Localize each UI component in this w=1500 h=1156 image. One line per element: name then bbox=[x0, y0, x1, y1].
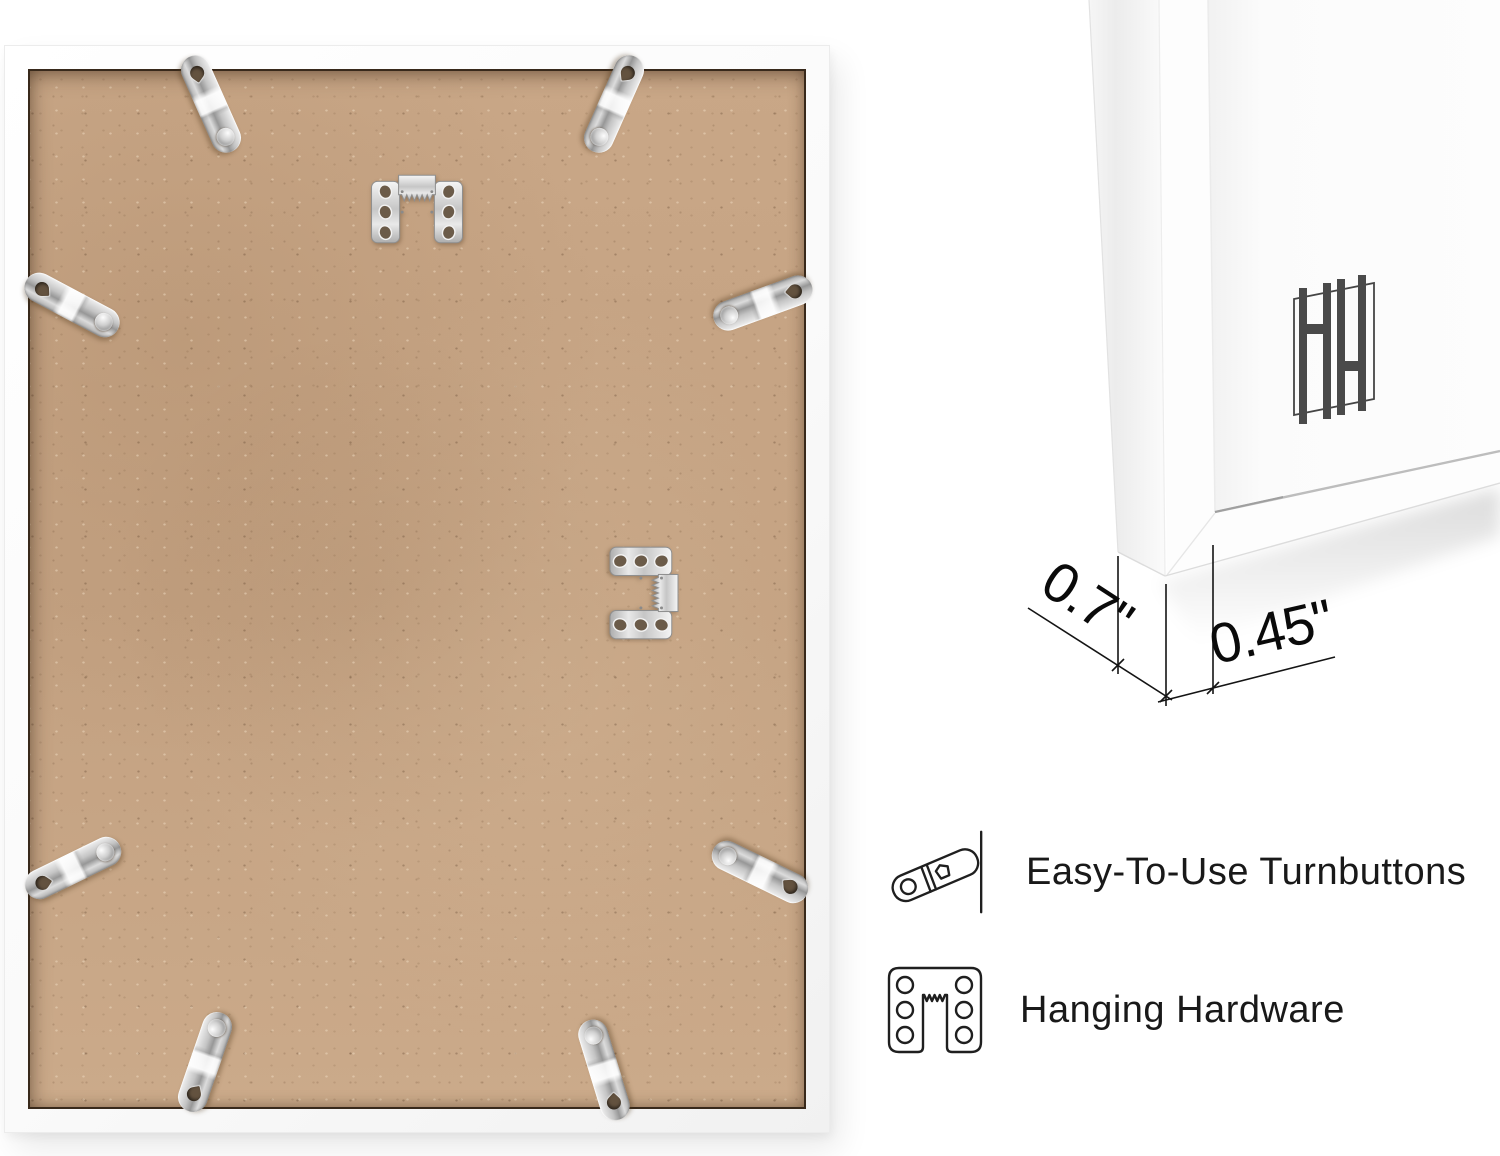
feature-label: Hanging Hardware bbox=[1020, 989, 1345, 1032]
feature-turnbuttons: Easy-To-Use Turnbuttons bbox=[886, 828, 1466, 916]
product-image: 0.7" 0.45" Easy-To-Use Turnbuttons Hangi… bbox=[0, 0, 1500, 1156]
feature-label: Easy-To-Use Turnbuttons bbox=[1026, 851, 1466, 894]
turnbutton-icon bbox=[886, 828, 990, 916]
feature-hanging-hardware: Hanging Hardware bbox=[886, 964, 1345, 1056]
sawtooth-hanger-landscape bbox=[609, 546, 679, 640]
frame-side-face bbox=[1089, 0, 1165, 576]
frame-back-photo bbox=[5, 46, 829, 1132]
glass-panel bbox=[1208, 0, 1500, 513]
sawtooth-hanger-portrait bbox=[371, 174, 463, 244]
depth-dimension-label: 0.7" bbox=[1031, 548, 1144, 652]
hanging-hardware-icon bbox=[886, 964, 984, 1056]
frame-corner-closeup: 0.7" 0.45" bbox=[1000, 0, 1500, 760]
